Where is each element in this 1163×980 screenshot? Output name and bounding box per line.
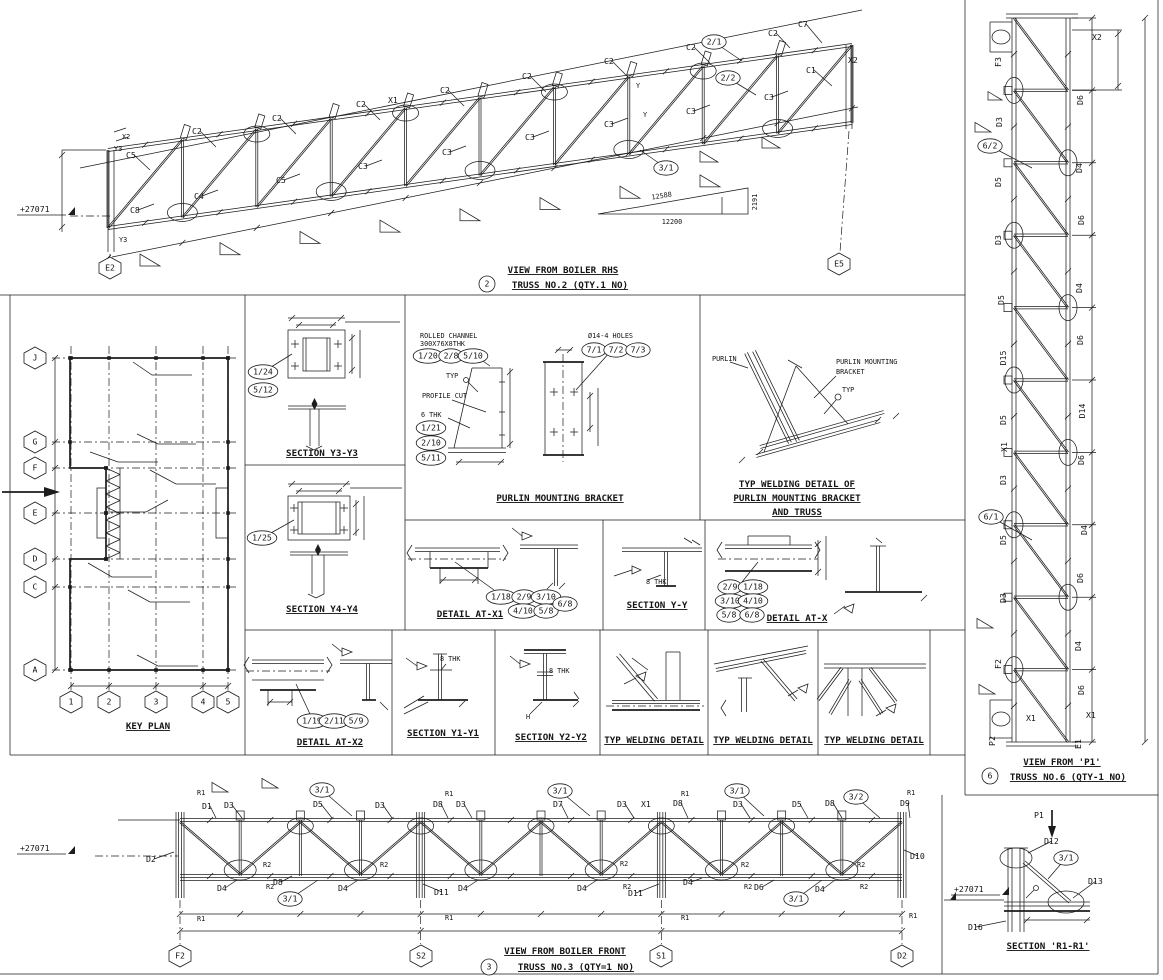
svg-text:D3: D3 bbox=[998, 593, 1008, 603]
svg-text:D3: D3 bbox=[994, 117, 1004, 127]
svg-text:S1: S1 bbox=[656, 951, 666, 961]
svg-text:R1: R1 bbox=[909, 912, 917, 920]
svg-text:D8: D8 bbox=[673, 798, 683, 808]
detail-bubble: 4/10 bbox=[508, 604, 538, 618]
svg-text:D8: D8 bbox=[273, 877, 283, 887]
svg-text:X1: X1 bbox=[999, 442, 1009, 452]
detail-bubble: 4/10 bbox=[738, 594, 768, 608]
svg-text:5/12: 5/12 bbox=[253, 385, 273, 395]
svg-text:Y3: Y3 bbox=[114, 145, 122, 153]
svg-text:1/24: 1/24 bbox=[253, 367, 273, 377]
section-y2-title: SECTION Y2-Y2 bbox=[515, 732, 587, 743]
grid-bubble: E2 bbox=[99, 257, 121, 279]
svg-text:D2: D2 bbox=[146, 854, 156, 864]
svg-text:R2: R2 bbox=[744, 883, 752, 891]
detail-bubble: 6/8 bbox=[740, 608, 764, 622]
svg-text:7/1: 7/1 bbox=[587, 345, 602, 355]
svg-text:C1: C1 bbox=[806, 65, 816, 75]
detail-bubble: 2/1 bbox=[702, 35, 742, 61]
detail-bubble: 3/2 bbox=[844, 790, 880, 818]
svg-text:2/8: 2/8 bbox=[444, 351, 459, 361]
svg-text:3/10: 3/10 bbox=[720, 596, 740, 606]
grid-bubble: D bbox=[24, 548, 46, 570]
svg-text:R1: R1 bbox=[907, 789, 915, 797]
svg-text:6/8: 6/8 bbox=[745, 610, 760, 620]
svg-text:R2: R2 bbox=[263, 861, 271, 869]
svg-text:S2: S2 bbox=[416, 951, 426, 961]
svg-text:1: 1 bbox=[69, 697, 74, 707]
member-label: D11 bbox=[628, 884, 659, 898]
member-label: D6 bbox=[1076, 215, 1086, 225]
member-label: D4 bbox=[1079, 525, 1089, 535]
member-label: X1 bbox=[388, 95, 398, 105]
svg-text:F: F bbox=[33, 463, 38, 473]
member-label: C3 bbox=[442, 146, 466, 157]
svg-text:D5: D5 bbox=[998, 535, 1008, 545]
svg-text:C2: C2 bbox=[272, 113, 282, 123]
member-label: TYP bbox=[842, 386, 854, 394]
svg-text:D6: D6 bbox=[754, 882, 764, 892]
member-label: X1 bbox=[1086, 710, 1096, 720]
svg-text:4/10: 4/10 bbox=[743, 596, 763, 606]
member-label: R1 bbox=[907, 789, 915, 797]
weld-pmb-title-1: TYP WELDING DETAIL OF bbox=[739, 479, 855, 490]
svg-text:D3: D3 bbox=[733, 799, 743, 809]
detail-bubble: 6/8 bbox=[553, 597, 577, 611]
svg-text:D4: D4 bbox=[1074, 163, 1084, 173]
member-label: 300X76X8THK bbox=[420, 340, 466, 348]
drawing-canvas: C5C2C2C2X1C2C2C2C2C2C7C1X2C8C4C5C3C3C3C3… bbox=[0, 0, 1163, 980]
svg-text:D4: D4 bbox=[683, 877, 693, 887]
svg-text:ROLLED CHANNEL: ROLLED CHANNEL bbox=[420, 332, 477, 340]
svg-text:8 THK: 8 THK bbox=[549, 667, 570, 675]
svg-text:2/9: 2/9 bbox=[517, 592, 532, 602]
member-label: F2 bbox=[993, 659, 1003, 669]
member-label: 12200 bbox=[662, 218, 682, 226]
detail-bubble: 1/18 bbox=[738, 580, 768, 594]
member-label: C2 bbox=[522, 71, 546, 92]
svg-text:R2: R2 bbox=[266, 883, 274, 891]
svg-text:D4: D4 bbox=[458, 883, 468, 893]
section-y3-title: SECTION Y3-Y3 bbox=[286, 448, 358, 459]
member-label: D6 bbox=[1076, 685, 1086, 695]
svg-text:D7: D7 bbox=[553, 799, 563, 809]
svg-text:R1: R1 bbox=[197, 789, 205, 797]
svg-text:6/2: 6/2 bbox=[983, 141, 998, 151]
svg-text:X1: X1 bbox=[1086, 710, 1096, 720]
grid-bubble: 1 bbox=[60, 691, 82, 713]
member-label: D2 bbox=[146, 852, 174, 864]
svg-text:A: A bbox=[33, 665, 38, 675]
svg-text:D3: D3 bbox=[993, 235, 1003, 245]
detail-bubble: 5/12 bbox=[248, 383, 278, 397]
member-label: D5 bbox=[998, 535, 1008, 545]
grid-bubble: S2 bbox=[410, 945, 432, 967]
detail-bubble: 5/10 bbox=[458, 349, 488, 363]
svg-text:8 THK: 8 THK bbox=[440, 655, 461, 663]
svg-text:C7: C7 bbox=[798, 19, 808, 29]
svg-text:1/25: 1/25 bbox=[252, 533, 272, 543]
member-label: R2 bbox=[263, 861, 271, 869]
detail-x2-title: DETAIL AT-X2 bbox=[297, 737, 363, 748]
member-label: D15 bbox=[998, 351, 1008, 366]
svg-text:F2: F2 bbox=[993, 659, 1003, 669]
svg-text:4: 4 bbox=[201, 697, 206, 707]
svg-text:Y: Y bbox=[643, 111, 647, 119]
svg-text:3/2: 3/2 bbox=[849, 792, 864, 802]
member-label: D4 bbox=[1073, 641, 1083, 651]
truss2-name-title: TRUSS NO.2 (QTY.1 NO) bbox=[512, 280, 628, 291]
member-label: D3 bbox=[456, 799, 472, 818]
svg-text:D10: D10 bbox=[910, 851, 925, 861]
member-label: PURLIN bbox=[712, 355, 737, 363]
member-label: C3 bbox=[604, 118, 628, 129]
member-label: 8 THK bbox=[549, 667, 570, 675]
member-label: D4 bbox=[815, 880, 835, 894]
detail-x-title: DETAIL AT-X bbox=[767, 613, 828, 624]
member-label: C5 bbox=[276, 174, 300, 185]
member-label: H bbox=[526, 713, 530, 721]
member-label: C8 bbox=[130, 204, 154, 215]
member-label: D3 bbox=[733, 799, 750, 818]
truss3-name-title: TRUSS NO.3 (QTY=1 NO) bbox=[518, 962, 634, 973]
member-label: D8 bbox=[825, 798, 842, 818]
detail-bubble: 3/1 bbox=[725, 784, 764, 816]
grid-bubble: S1 bbox=[650, 945, 672, 967]
member-label: 8 THK bbox=[440, 655, 461, 663]
detail-bubble: 1/25 bbox=[247, 520, 294, 545]
member-label: C3 bbox=[525, 131, 549, 142]
svg-text:+27071: +27071 bbox=[954, 884, 984, 894]
svg-text:5/10: 5/10 bbox=[463, 351, 483, 361]
member-label: PURLIN MOUNTING bbox=[836, 358, 897, 366]
member-label: D3 bbox=[998, 593, 1008, 603]
svg-text:C3: C3 bbox=[764, 92, 774, 102]
member-label: C7 bbox=[798, 19, 822, 43]
svg-text:D12: D12 bbox=[1044, 836, 1059, 846]
svg-text:E: E bbox=[33, 508, 38, 518]
grid-bubble: D2 bbox=[891, 945, 913, 967]
member-label: D3 bbox=[998, 475, 1008, 485]
truss3-view-title: VIEW FROM BOILER FRONT bbox=[504, 946, 626, 957]
detail-bubble: 7/3 bbox=[626, 343, 650, 357]
member-label: C3 bbox=[686, 105, 710, 116]
svg-text:2191: 2191 bbox=[751, 194, 759, 210]
member-label: D4 bbox=[683, 877, 702, 887]
svg-text:5/9: 5/9 bbox=[349, 716, 364, 726]
svg-text:C2: C2 bbox=[522, 71, 532, 81]
grid-bubble: A bbox=[24, 659, 46, 681]
member-label: R2 bbox=[380, 861, 388, 869]
grid-bubble: 4 bbox=[192, 691, 214, 713]
svg-text:TYP: TYP bbox=[446, 372, 458, 380]
member-label: R2 bbox=[744, 883, 752, 891]
weld-typ-title-1: TYP WELDING DETAIL bbox=[604, 735, 704, 746]
svg-text:2/9: 2/9 bbox=[723, 582, 738, 592]
svg-text:R2: R2 bbox=[620, 860, 628, 868]
svg-text:F3: F3 bbox=[993, 57, 1003, 67]
svg-text:D4: D4 bbox=[1073, 641, 1083, 651]
detail-bubble: 1/18 bbox=[486, 590, 516, 604]
weld-pmb-title-3: AND TRUSS bbox=[772, 507, 822, 518]
grid-bubble: 5 bbox=[217, 691, 239, 713]
svg-text:PURLIN: PURLIN bbox=[712, 355, 737, 363]
member-label: F3 bbox=[993, 57, 1003, 67]
detail-bubble: 3/1 bbox=[278, 880, 318, 906]
svg-text:G: G bbox=[33, 437, 38, 447]
svg-text:D16: D16 bbox=[968, 922, 983, 932]
member-label: Y bbox=[636, 82, 640, 90]
svg-text:D3: D3 bbox=[456, 799, 466, 809]
member-label: R1 bbox=[445, 914, 453, 922]
view-number: 6 bbox=[982, 768, 998, 784]
svg-text:X2: X2 bbox=[122, 133, 130, 141]
member-label: R1 bbox=[909, 912, 917, 920]
svg-text:R2: R2 bbox=[623, 883, 631, 891]
member-label: D4 bbox=[1074, 283, 1084, 293]
member-label: X1 bbox=[1026, 713, 1036, 723]
member-label: D6 bbox=[754, 880, 774, 892]
member-label: E1 bbox=[1073, 739, 1083, 749]
svg-text:D14: D14 bbox=[1077, 404, 1087, 419]
svg-text:6/1: 6/1 bbox=[984, 512, 999, 522]
svg-text:D5: D5 bbox=[792, 799, 802, 809]
member-label: D4 bbox=[577, 880, 597, 893]
member-label: D3 bbox=[224, 800, 242, 818]
svg-text:1/21: 1/21 bbox=[421, 423, 441, 433]
member-label: P2 bbox=[987, 736, 997, 746]
member-label: R2 bbox=[620, 860, 628, 868]
svg-text:1/18: 1/18 bbox=[743, 582, 763, 592]
svg-text:D9: D9 bbox=[900, 798, 910, 808]
svg-text:D6: D6 bbox=[1076, 215, 1086, 225]
svg-text:D11: D11 bbox=[434, 887, 449, 897]
detail-bubble: 5/8 bbox=[717, 608, 741, 622]
detail-bubble: 1/24 bbox=[248, 354, 292, 379]
svg-text:R2: R2 bbox=[741, 861, 749, 869]
member-label: R2 bbox=[857, 861, 865, 869]
truss2-view-title: VIEW FROM BOILER RHS bbox=[508, 265, 619, 276]
member-label: D10 bbox=[904, 850, 925, 861]
section-y1-title: SECTION Y1-Y1 bbox=[407, 728, 479, 739]
section-y4-title: SECTION Y4-Y4 bbox=[286, 604, 358, 615]
svg-text:R2: R2 bbox=[860, 883, 868, 891]
member-label: 6 THK bbox=[421, 411, 442, 419]
svg-text:D8: D8 bbox=[433, 799, 443, 809]
svg-text:C5: C5 bbox=[276, 175, 286, 185]
svg-text:X2: X2 bbox=[1092, 32, 1102, 42]
member-label: C2 bbox=[768, 28, 790, 48]
member-label: D9 bbox=[900, 798, 910, 818]
svg-text:R1: R1 bbox=[445, 790, 453, 798]
detail-bubble: 7/2 bbox=[604, 343, 628, 357]
svg-text:2: 2 bbox=[485, 279, 490, 289]
key-plan-title: KEY PLAN bbox=[126, 721, 170, 732]
svg-text:2/10: 2/10 bbox=[421, 438, 441, 448]
svg-text:C2: C2 bbox=[356, 99, 366, 109]
member-label: D6 bbox=[1075, 573, 1085, 583]
member-label: D6 bbox=[1076, 455, 1086, 465]
member-label: D8 bbox=[433, 799, 448, 818]
member-label: ROLLED CHANNEL bbox=[420, 332, 477, 340]
svg-text:6/8: 6/8 bbox=[558, 599, 573, 609]
member-label: C2 bbox=[604, 56, 628, 77]
member-label: R1 bbox=[681, 790, 689, 798]
member-label: D13 bbox=[1073, 876, 1103, 898]
svg-text:C5: C5 bbox=[126, 150, 136, 160]
svg-text:D4: D4 bbox=[1074, 283, 1084, 293]
svg-text:TYP: TYP bbox=[842, 386, 854, 394]
member-label: C3 bbox=[358, 160, 382, 171]
svg-text:C3: C3 bbox=[358, 161, 368, 171]
svg-text:C2: C2 bbox=[768, 28, 778, 38]
member-label: P1 bbox=[1034, 810, 1044, 820]
member-label: R2 bbox=[741, 861, 749, 869]
member-label: D5 bbox=[792, 799, 808, 818]
member-label: 8 THK bbox=[646, 578, 667, 586]
purlin-bracket-title: PURLIN MOUNTING BRACKET bbox=[496, 493, 624, 504]
svg-text:D8: D8 bbox=[825, 798, 835, 808]
member-label: X1 bbox=[999, 442, 1009, 452]
member-label: R1 bbox=[445, 790, 453, 798]
svg-text:3/1: 3/1 bbox=[1059, 853, 1074, 863]
member-label: D3 bbox=[375, 800, 392, 818]
member-label: X2 bbox=[848, 55, 858, 65]
member-label: D1 bbox=[202, 801, 216, 818]
member-label: R1 bbox=[681, 914, 689, 922]
svg-text:D3: D3 bbox=[617, 799, 627, 809]
grid-bubble: 2 bbox=[98, 691, 120, 713]
cad-sheet: C5C2C2C2X1C2C2C2C2C2C7C1X2C8C4C5C3C3C3C3… bbox=[0, 0, 1163, 980]
truss6-name-title: TRUSS NO.6 (QTY-1 NO) bbox=[1010, 772, 1126, 783]
member-label: R2 bbox=[860, 883, 868, 891]
svg-text:BRACKET: BRACKET bbox=[836, 368, 865, 376]
svg-text:C3: C3 bbox=[442, 147, 452, 157]
svg-text:C2: C2 bbox=[192, 126, 202, 136]
svg-text:3/1: 3/1 bbox=[789, 894, 804, 904]
svg-text:PROFILE CUT: PROFILE CUT bbox=[422, 392, 467, 400]
svg-text:D3: D3 bbox=[375, 800, 385, 810]
svg-text:J: J bbox=[33, 353, 38, 363]
member-label: 2191 bbox=[751, 194, 759, 210]
svg-text:D6: D6 bbox=[1076, 685, 1086, 695]
svg-text:Y3: Y3 bbox=[119, 236, 127, 244]
member-label: BRACKET bbox=[836, 368, 865, 376]
grid-bubble: 3 bbox=[145, 691, 167, 713]
svg-text:7/2: 7/2 bbox=[609, 345, 624, 355]
member-label: C3 bbox=[764, 91, 788, 102]
svg-text:C3: C3 bbox=[604, 119, 614, 129]
member-label: R2 bbox=[266, 883, 274, 891]
svg-text:D4: D4 bbox=[338, 883, 348, 893]
svg-text:D6: D6 bbox=[1075, 95, 1085, 105]
svg-text:1/18: 1/18 bbox=[491, 592, 511, 602]
svg-text:X2: X2 bbox=[848, 55, 858, 65]
svg-text:C2: C2 bbox=[440, 85, 450, 95]
detail-bubble: 7/1 bbox=[582, 343, 606, 357]
truss6-view-title: VIEW FROM 'P1' bbox=[1023, 757, 1100, 768]
member-label: D3 bbox=[993, 235, 1003, 245]
grid-bubble: C bbox=[24, 576, 46, 598]
detail-bubble: 5/11 bbox=[416, 451, 446, 465]
svg-text:X1: X1 bbox=[388, 95, 398, 105]
detail-bubble: 1/20 bbox=[413, 349, 443, 363]
member-label: C4 bbox=[194, 190, 218, 201]
member-label: D12 bbox=[1028, 836, 1059, 853]
svg-text:C: C bbox=[33, 582, 38, 592]
svg-text:+27071: +27071 bbox=[20, 204, 50, 214]
svg-text:2/2: 2/2 bbox=[721, 73, 736, 83]
svg-text:D15: D15 bbox=[998, 351, 1008, 366]
svg-text:C4: C4 bbox=[194, 191, 204, 201]
svg-text:5/8: 5/8 bbox=[722, 610, 737, 620]
svg-text:4/10: 4/10 bbox=[513, 606, 533, 616]
grid-bubble: E5 bbox=[828, 253, 850, 275]
member-label: Y bbox=[643, 111, 647, 119]
svg-text:R1: R1 bbox=[197, 915, 205, 923]
member-label: D4 bbox=[458, 880, 478, 893]
grid-bubble: F2 bbox=[169, 945, 191, 967]
svg-text:R2: R2 bbox=[380, 861, 388, 869]
member-label: PROFILE CUT bbox=[422, 392, 467, 400]
svg-text:2/1: 2/1 bbox=[707, 37, 722, 47]
svg-text:X1: X1 bbox=[1026, 713, 1036, 723]
svg-text:5/11: 5/11 bbox=[421, 453, 441, 463]
detail-bubble: 1/21 bbox=[416, 421, 446, 435]
svg-text:+27071: +27071 bbox=[20, 843, 50, 853]
member-label: D11 bbox=[423, 884, 449, 897]
section-r1-title: SECTION 'R1-R1' bbox=[1007, 941, 1090, 952]
member-label: X2 bbox=[122, 133, 130, 141]
weld-typ-title-2: TYP WELDING DETAIL bbox=[713, 735, 813, 746]
svg-text:D4: D4 bbox=[815, 884, 825, 894]
member-label: D4 bbox=[1074, 163, 1084, 173]
svg-text:C3: C3 bbox=[525, 132, 535, 142]
member-label: R1 bbox=[197, 789, 205, 797]
svg-text:12588: 12588 bbox=[651, 190, 672, 201]
view-number: 2 bbox=[479, 276, 495, 292]
svg-text:F2: F2 bbox=[175, 951, 185, 961]
member-label: D4 bbox=[338, 880, 358, 893]
svg-text:Ø14-4 HOLES: Ø14-4 HOLES bbox=[588, 332, 633, 340]
svg-text:D4: D4 bbox=[577, 883, 587, 893]
member-label: R1 bbox=[197, 915, 205, 923]
svg-text:D6: D6 bbox=[1075, 335, 1085, 345]
member-label: D6 bbox=[1075, 335, 1085, 345]
member-label: D8 bbox=[273, 876, 292, 887]
member-label: D5 bbox=[998, 415, 1008, 425]
detail-bubble: 5/9 bbox=[344, 714, 368, 728]
svg-text:2/11: 2/11 bbox=[324, 716, 344, 726]
svg-text:6: 6 bbox=[988, 771, 993, 781]
svg-text:D5: D5 bbox=[998, 415, 1008, 425]
svg-text:7/3: 7/3 bbox=[631, 345, 646, 355]
svg-text:D5: D5 bbox=[996, 295, 1006, 305]
member-label: 12588 bbox=[651, 190, 672, 201]
view-number: 3 bbox=[481, 959, 497, 975]
svg-text:D2: D2 bbox=[897, 951, 907, 961]
svg-text:D: D bbox=[33, 554, 38, 564]
grid-bubble: G bbox=[24, 431, 46, 453]
svg-text:3: 3 bbox=[487, 962, 492, 972]
svg-text:C2: C2 bbox=[686, 42, 696, 52]
member-label: D5 bbox=[996, 295, 1006, 305]
member-label: D7 bbox=[553, 799, 568, 818]
detail-bubble: 2/2 bbox=[716, 71, 756, 95]
level-marker: +27071 bbox=[951, 884, 1009, 895]
svg-text:5/8: 5/8 bbox=[539, 606, 554, 616]
svg-text:8 THK: 8 THK bbox=[646, 578, 667, 586]
